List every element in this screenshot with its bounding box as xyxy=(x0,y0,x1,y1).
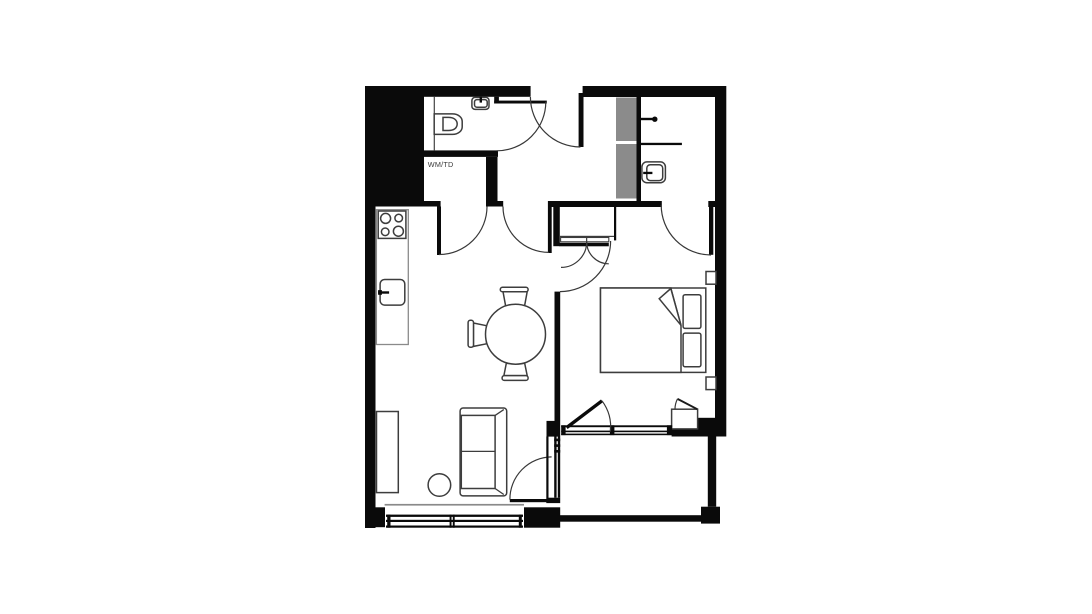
svg-text:WM/TD: WM/TD xyxy=(428,160,454,169)
